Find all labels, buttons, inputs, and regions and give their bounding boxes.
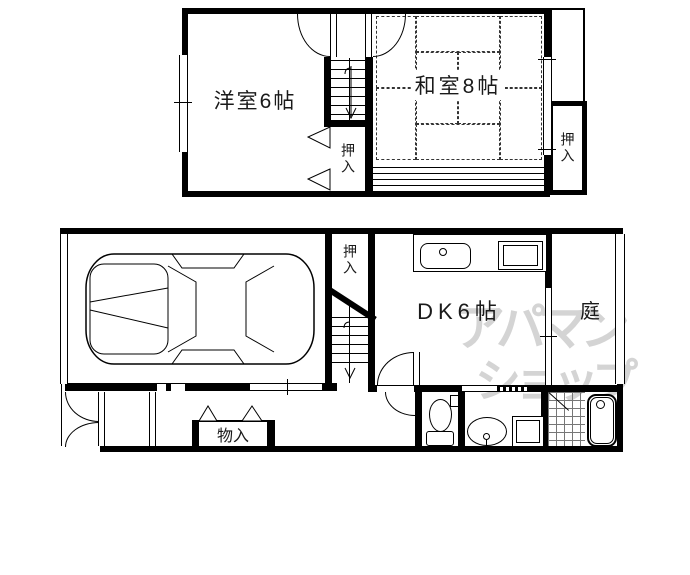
wall [267, 422, 275, 447]
window-tick [538, 59, 556, 60]
closet-center-label: 押入 [331, 127, 365, 190]
window-tick [538, 149, 556, 150]
western-room-label: 洋室6帖 [188, 8, 322, 191]
folding-door-icon [198, 405, 218, 422]
door-opening [377, 385, 414, 392]
door-leaf [365, 14, 372, 57]
washbasin-drain [483, 433, 490, 440]
wall [324, 57, 331, 120]
garage-shutter-icon [60, 234, 68, 384]
window-tick [174, 102, 192, 103]
floor-plan: 押入 洋室6帖 押入 和室8帖 アパマン ショップ [0, 0, 690, 575]
tiled-floor [548, 392, 585, 446]
stairs-up-arrow-icon [343, 62, 359, 124]
stairs-down-arrow-icon [342, 316, 358, 384]
window-tick [287, 379, 288, 395]
tatami-mat [416, 124, 500, 160]
wall-line [61, 384, 62, 446]
folding-door-icon [241, 405, 263, 422]
cistern-box [450, 395, 459, 407]
tatami-mat [416, 16, 500, 52]
washbasin-stem [486, 440, 487, 447]
japanese-room-label-text: 和室8帖 [411, 70, 506, 100]
wall [458, 392, 465, 452]
door-leaf [330, 14, 337, 57]
vent-window-icon [497, 387, 530, 391]
washing-machine-inner [516, 420, 540, 443]
balcony [550, 8, 585, 103]
toilet-tank [426, 431, 454, 446]
door-opening [157, 383, 185, 391]
washbasin-icon [467, 417, 507, 446]
sliding-door-panel [166, 383, 171, 391]
window-icon [462, 385, 497, 392]
japanese-room-label: 和室8帖 [372, 62, 544, 108]
wall [192, 422, 199, 447]
window-icon [179, 55, 188, 152]
car-icon [84, 246, 316, 372]
closet-right-label: 押入 [553, 106, 582, 190]
garden-label: 庭 [560, 234, 620, 385]
door-leaf [98, 392, 105, 446]
wall [415, 385, 422, 452]
dining-kitchen-label: DK6帖 [374, 234, 545, 385]
partition-line [149, 392, 156, 446]
closet-lower-label: 押入 [332, 234, 368, 286]
window-icon [543, 57, 552, 155]
storage-label: 物入 [199, 422, 267, 446]
veranda [372, 162, 544, 191]
bathtub-drain [596, 400, 605, 409]
wall [325, 234, 332, 383]
sliding-door-icon [250, 383, 322, 391]
window-tick [540, 336, 557, 337]
